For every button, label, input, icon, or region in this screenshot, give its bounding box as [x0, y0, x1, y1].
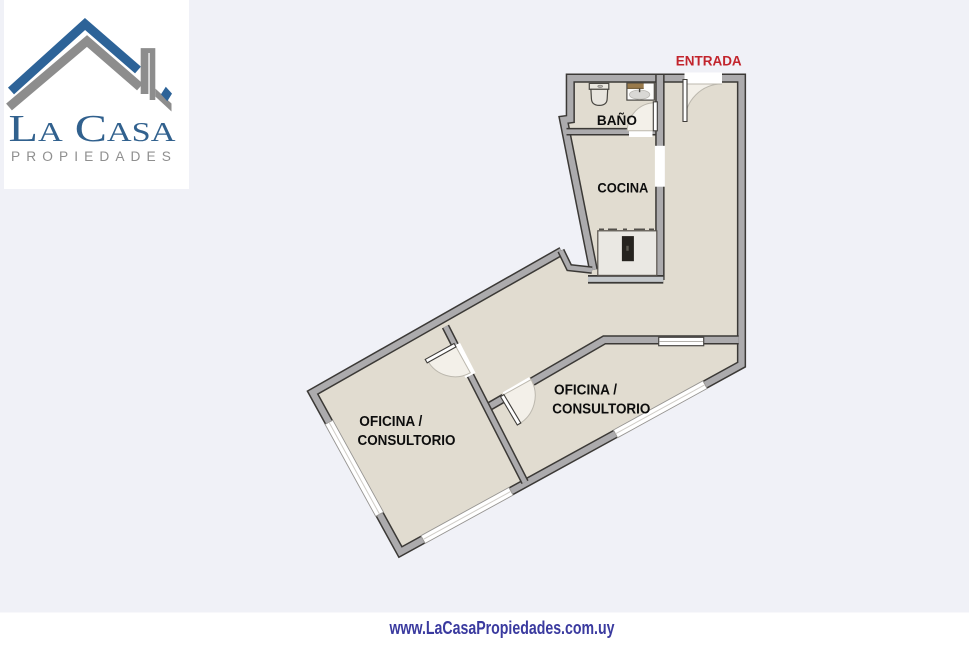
svg-text:La Casa: La Casa [9, 108, 177, 150]
svg-text:CONSULTORIO: CONSULTORIO [552, 401, 650, 418]
svg-text:CONSULTORIO: CONSULTORIO [358, 432, 456, 449]
svg-text:COCINA: COCINA [597, 181, 648, 196]
svg-text:OFICINA /: OFICINA / [359, 413, 423, 430]
svg-text:www.LaCasaPropiedades.com.uy: www.LaCasaPropiedades.com.uy [389, 617, 615, 638]
svg-text:BAÑO: BAÑO [597, 111, 637, 128]
svg-text:ENTRADA: ENTRADA [676, 54, 742, 70]
svg-text:OFICINA /: OFICINA / [554, 381, 618, 398]
svg-text:PROPIEDADES: PROPIEDADES [11, 149, 177, 164]
